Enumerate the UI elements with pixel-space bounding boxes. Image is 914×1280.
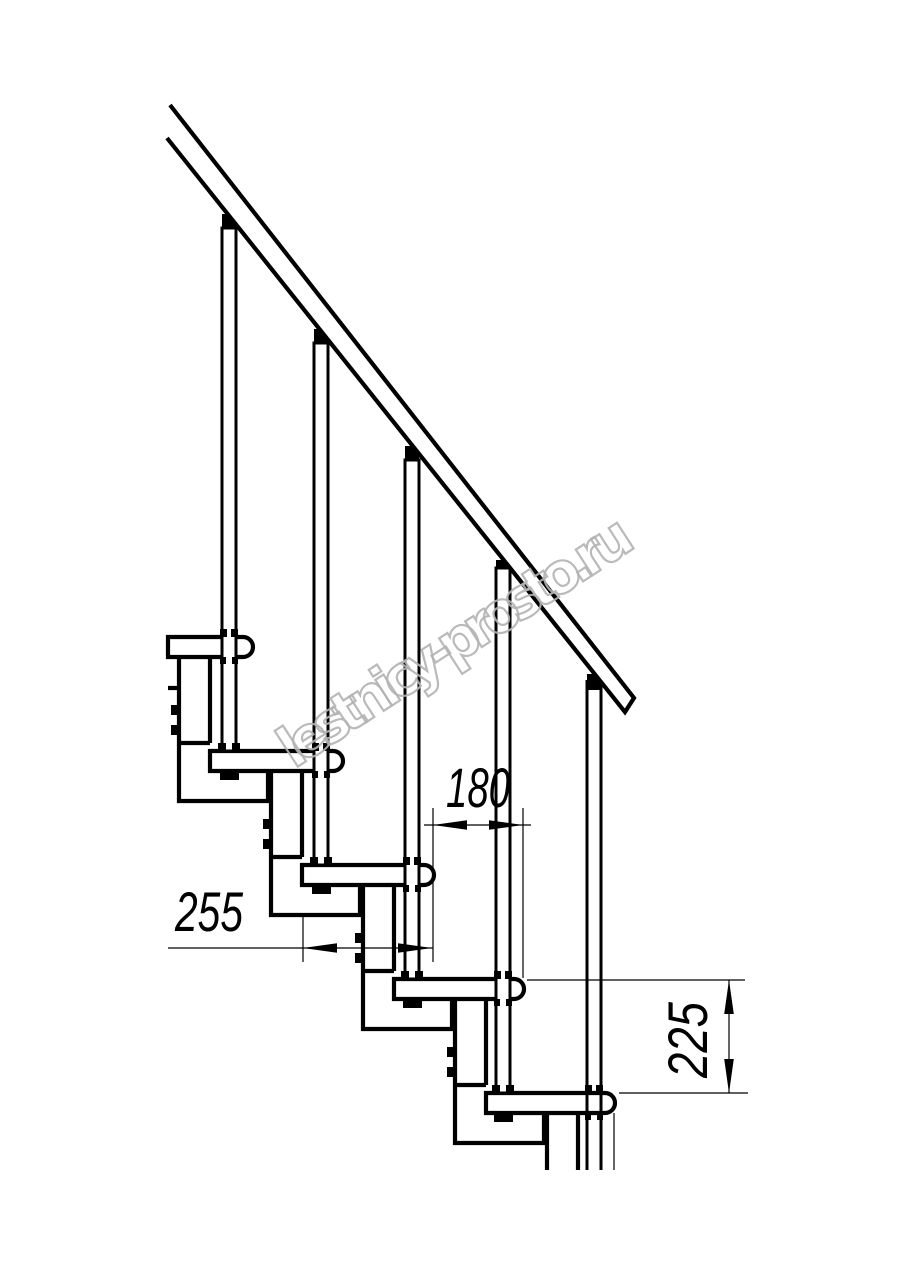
- collar-flare: [324, 857, 332, 865]
- collar-mark: [597, 1113, 603, 1120]
- dimension-arrow: [724, 1059, 734, 1093]
- collar-flare: [218, 743, 226, 751]
- collar-mark: [232, 657, 238, 664]
- collar-flare: [401, 971, 409, 979]
- collar-mark: [585, 1113, 591, 1120]
- collar-mark: [324, 771, 330, 778]
- bolt-tab: [355, 953, 363, 963]
- collar-mark: [494, 971, 501, 979]
- bolt-tab: [263, 819, 271, 829]
- bolt-tab: [171, 725, 179, 735]
- dimension-225: 225: [527, 980, 748, 1093]
- collar-mark: [494, 999, 500, 1006]
- collar-flare: [492, 1085, 500, 1093]
- dimension-180: 180: [424, 756, 531, 978]
- dimension-arrow: [433, 820, 467, 830]
- bolt-tab: [263, 839, 271, 849]
- fixing-nut: [220, 771, 239, 780]
- collar-flare: [415, 971, 423, 979]
- baluster-rod: [405, 460, 419, 979]
- dimension-label-255: 255: [174, 880, 243, 943]
- fixing-nut: [403, 999, 422, 1008]
- fixing-nut: [312, 885, 331, 894]
- dimension-label-225: 225: [656, 1001, 719, 1079]
- collar-mark: [585, 1085, 592, 1093]
- collar-mark: [505, 971, 512, 979]
- bolt-tab: [355, 933, 363, 943]
- collar-mark: [220, 657, 226, 664]
- collar-mark: [403, 857, 410, 865]
- baluster-rod: [314, 343, 328, 865]
- collar-flare: [310, 857, 318, 865]
- bolt-tab: [171, 705, 179, 715]
- collar-mark: [403, 885, 409, 892]
- tread: [168, 637, 253, 657]
- dimension-arrow: [303, 943, 337, 953]
- collar-mark: [231, 629, 238, 637]
- bolt-tab: [447, 1047, 455, 1057]
- staircase-technical-drawing: 255 180 225 lestnicy-prosto.ru: [0, 0, 914, 1280]
- dimension-arrow: [724, 980, 734, 1014]
- collar-mark: [414, 857, 421, 865]
- fixing-nut: [494, 1113, 513, 1122]
- dimension-label-180: 180: [446, 756, 510, 819]
- collar-flare: [506, 1085, 514, 1093]
- bolt-tab: [447, 1067, 455, 1077]
- collar-mark: [506, 999, 512, 1006]
- collar-mark: [596, 1085, 603, 1093]
- collar-flare: [232, 743, 240, 751]
- tread: [486, 1093, 615, 1113]
- collar-mark: [220, 629, 227, 637]
- drawing-page: 255 180 225 lestnicy-prosto.ru: [0, 0, 914, 1280]
- collar-mark: [415, 885, 421, 892]
- baluster-rod: [222, 228, 236, 751]
